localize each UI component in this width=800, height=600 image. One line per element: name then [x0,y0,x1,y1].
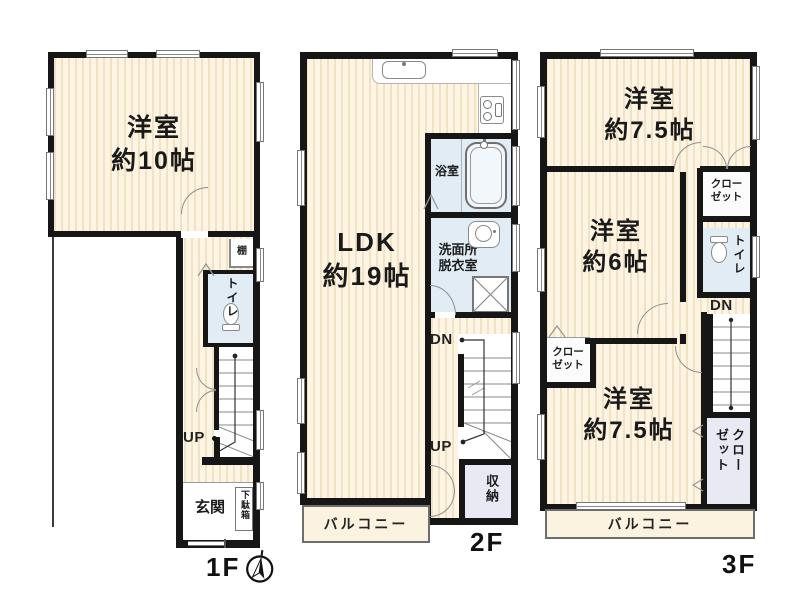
room-size: 約7.5帖 [604,115,695,146]
floor-3f: クロー ゼット トイレ クロー ゼット DN クロー ゼット [0,0,800,600]
wall [680,172,686,302]
window-symbol [600,49,694,57]
window-symbol [537,414,545,460]
folding-door-icon [692,478,704,492]
room-size: 約7.5帖 [583,415,674,446]
room-size: 約6帖 [582,247,649,278]
closet-line1: クロー [704,178,749,191]
room-label: 洋室 約7.5帖 [586,84,714,146]
wall [590,338,596,388]
window-symbol [752,66,760,140]
window-symbol [537,86,545,138]
room-name: 洋室 [624,84,676,115]
toilet-label: トイレ [731,234,748,276]
closet-line2: ゼット [546,359,590,372]
dn-label: DN [710,297,733,314]
wall [546,166,674,172]
wall [585,338,677,344]
folding-door-icon [548,325,566,338]
window-symbol [752,236,760,278]
wall [697,168,703,222]
room-label: 洋室 約7.5帖 [564,384,694,446]
floor-label-3f: 3F [722,549,756,580]
toilet-icon [711,242,727,263]
stairs-icon [707,314,750,414]
wall [701,412,750,418]
window-symbol [537,248,545,292]
floorplan: 洋室 約10帖 棚 トイレ UP 玄関 下駄箱 [0,0,800,600]
wall [703,216,750,222]
f3-balcony: バルコニー [545,509,755,539]
room-name: 洋室 [590,216,642,247]
closet-line1: クロー [546,346,590,359]
wall [697,292,750,298]
closet-label: クロー ゼット [704,178,749,204]
wall [697,222,703,298]
wall [680,334,686,344]
room-name: 洋室 [603,384,655,415]
balcony-label: バルコニー [608,514,693,534]
closet-line2: ゼット [704,191,749,204]
closet-line2: ゼット [712,428,731,473]
closet-label: クロー ゼット [546,346,590,372]
room-label: 洋室 約6帖 [552,216,680,278]
